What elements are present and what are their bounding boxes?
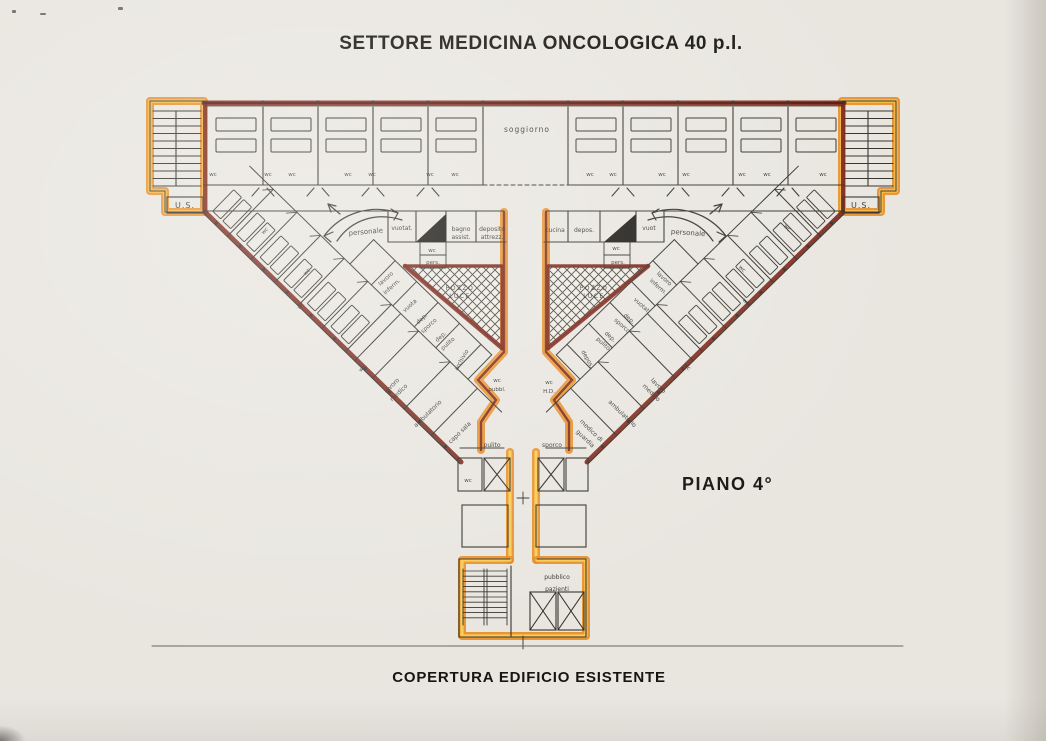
scanned-floor-plan-page: { "title": "SETTORE MEDICINA ONCOLOGICA …	[0, 0, 1046, 741]
plan-label: personale	[671, 228, 706, 238]
plan-label: ambulatorio	[412, 399, 443, 429]
plan-label: wc	[464, 478, 472, 484]
plan-label: depos.	[574, 227, 594, 234]
plan-label: pers.	[426, 260, 440, 266]
plan-label: archivio	[454, 349, 471, 372]
plan-label: cucina	[545, 227, 565, 234]
plan-label: wc	[451, 172, 459, 178]
scan-corner-shadow	[0, 725, 26, 741]
plan-label: capo sala	[447, 420, 473, 445]
plan-label: attrezz.	[481, 234, 504, 241]
plan-label: wc	[426, 172, 434, 178]
plan-label: wc	[586, 172, 594, 178]
plan-label: LUCE	[449, 293, 470, 300]
plan-label: wc	[682, 172, 690, 178]
plan-label: wc	[264, 172, 272, 178]
plan-label: vuotat.	[391, 225, 412, 232]
plan-label: personale	[348, 227, 383, 238]
plan-label: LUCE	[583, 293, 604, 300]
plan-label: assist.	[452, 234, 471, 241]
plan-label: vuotat.	[632, 297, 651, 315]
plan-label: wc	[209, 172, 217, 178]
plan-label: bagno	[452, 226, 471, 233]
plan-label: wc	[658, 172, 666, 178]
plan-label: soggiorno	[504, 125, 550, 134]
plan-label: H.D.	[543, 389, 555, 395]
plan-label: deposito	[479, 226, 505, 233]
plan-label: wc	[737, 265, 747, 275]
plan-label: U.S.	[851, 201, 871, 210]
plan-label: wc	[545, 380, 553, 386]
plan-label: wc	[428, 248, 436, 254]
plan-label: pulito	[484, 442, 501, 449]
plan-label: vuota	[402, 298, 419, 314]
plan-label: sporco	[542, 442, 562, 449]
highlighted-escape-routes	[150, 101, 896, 636]
plan-label: POZZO	[580, 285, 609, 292]
plan-label: wc	[368, 172, 376, 178]
plan-label: U.S.	[175, 201, 195, 210]
floor-plan-drawing: U.S.U.S.soggiornowcwcwcwcwcwcwcwcwcwcwcw…	[0, 0, 1046, 741]
plan-label: wc	[288, 172, 296, 178]
plan-label: wc	[609, 172, 617, 178]
plan-label: vuot	[642, 225, 656, 232]
plan-label: POZZO	[446, 285, 475, 292]
plan-label: wc	[819, 172, 827, 178]
plan-label: pers.	[611, 260, 625, 266]
plan-label: wc	[493, 378, 501, 384]
plan-label: wc	[738, 172, 746, 178]
plan-label: pazienti	[545, 586, 569, 593]
plan-label: wc	[763, 172, 771, 178]
plan-label: wc	[612, 246, 620, 252]
plan-label: pubblico	[544, 574, 570, 581]
main-walls	[204, 103, 844, 462]
plan-label: pubbl.	[488, 387, 505, 393]
plan-label: wc	[344, 172, 352, 178]
